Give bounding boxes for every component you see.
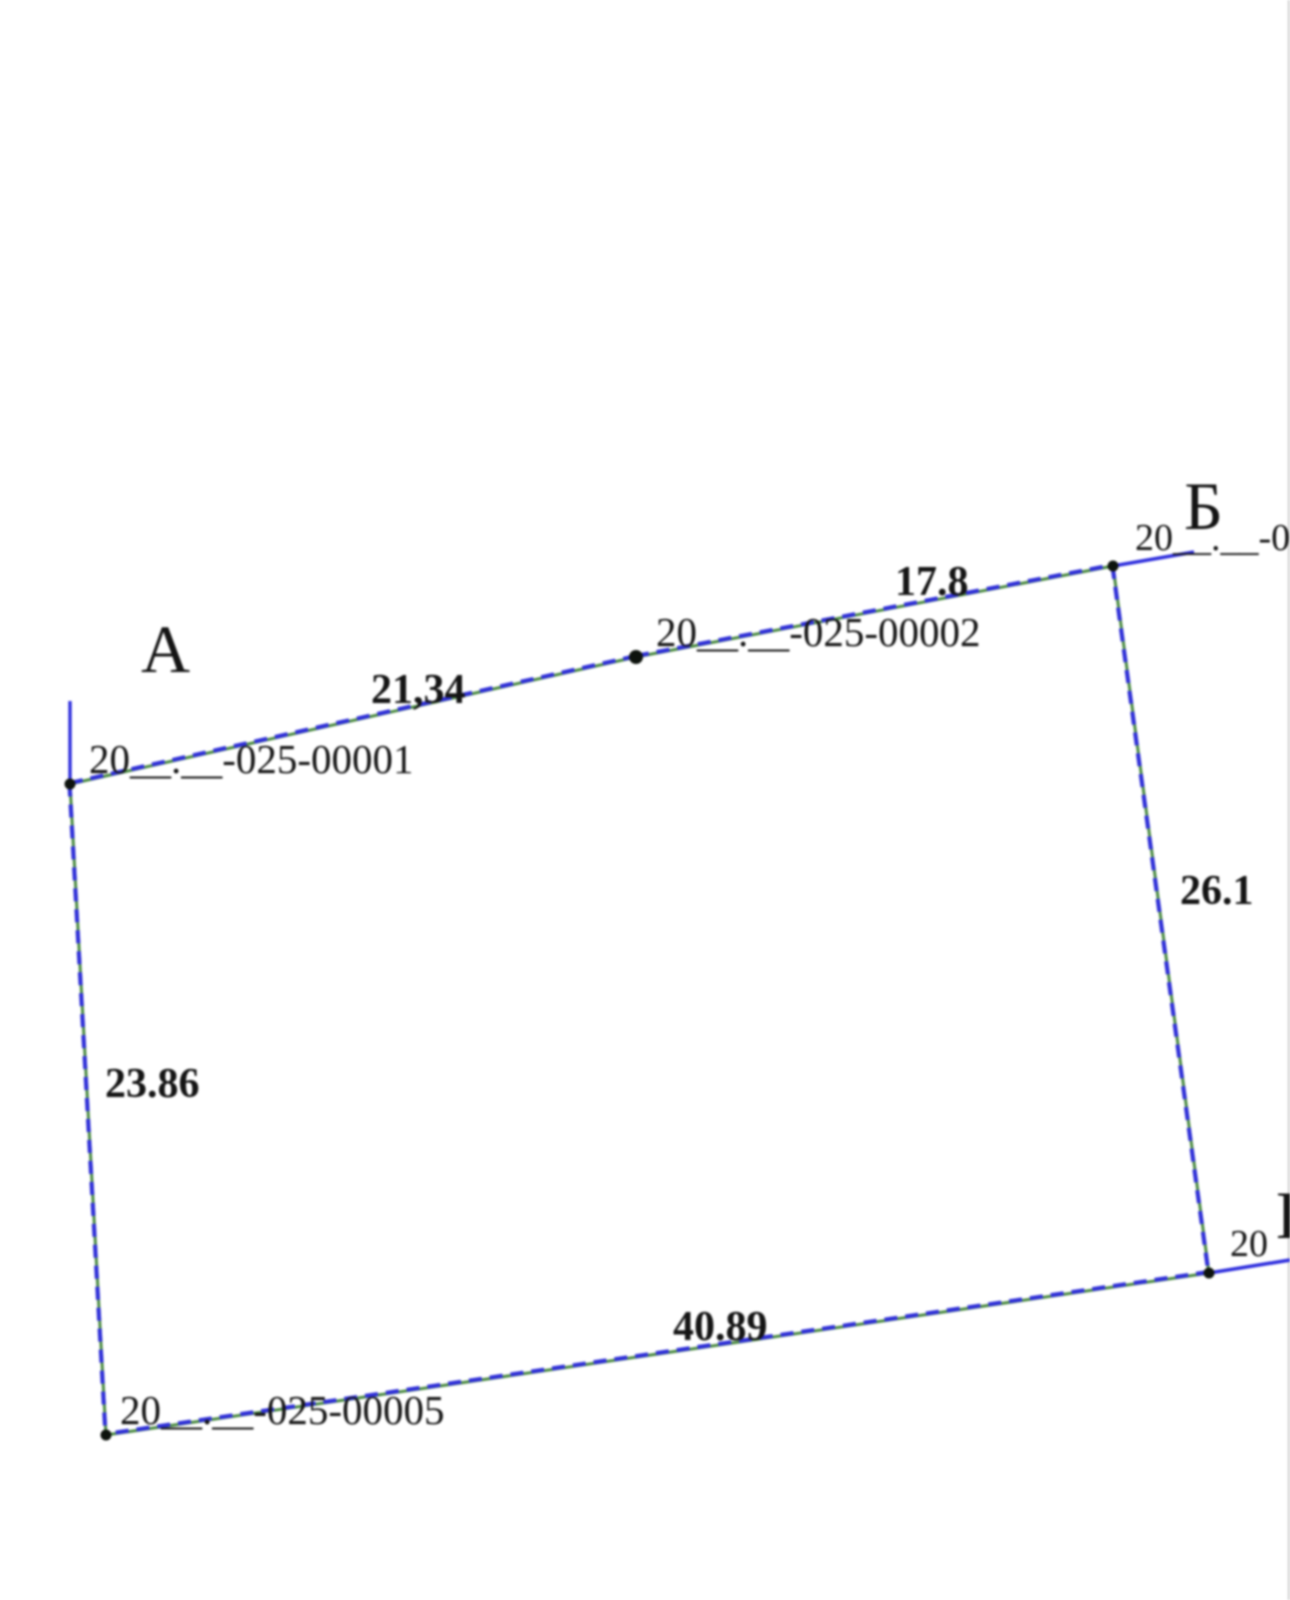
svg-text:20__.__-025-00002: 20__.__-025-00002: [656, 609, 981, 655]
svg-text:20: 20: [1230, 1223, 1268, 1265]
svg-text:20__.__-025-00001: 20__.__-025-00001: [89, 736, 414, 782]
svg-text:21,34: 21,34: [371, 667, 466, 713]
svg-text:20__.__-025-00005: 20__.__-025-00005: [120, 1387, 445, 1433]
svg-text:23.86: 23.86: [105, 1061, 200, 1107]
svg-text:26.1: 26.1: [1180, 868, 1254, 914]
svg-text:В: В: [1276, 1177, 1290, 1253]
svg-text:40.89: 40.89: [673, 1304, 768, 1350]
svg-text:20__.__-025-00002: 20__.__-025-00002: [1135, 517, 1290, 559]
svg-text:А: А: [141, 611, 190, 687]
svg-text:17.8: 17.8: [895, 559, 969, 605]
